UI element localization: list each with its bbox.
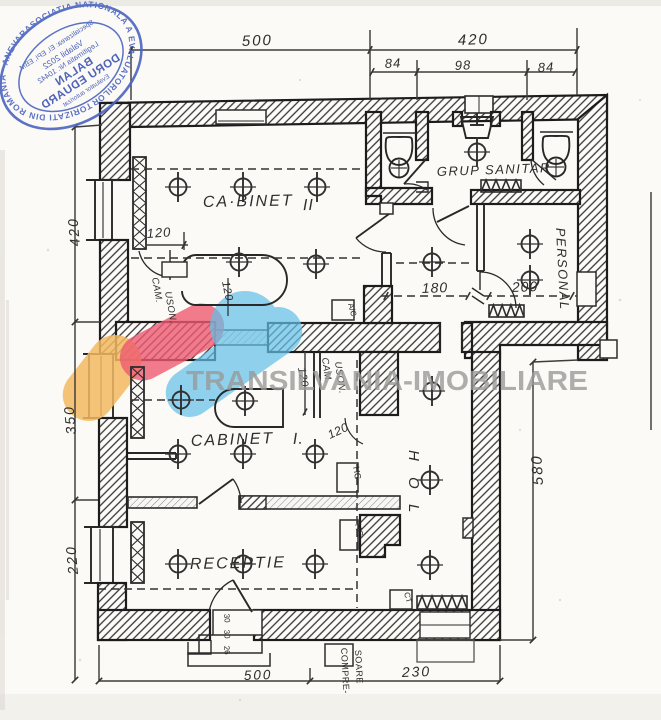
svg-text:II: II — [303, 197, 314, 214]
svg-text:RECEPTIE: RECEPTIE — [190, 554, 286, 573]
svg-text:I.: I. — [293, 431, 304, 448]
svg-text:SOARE: SOARE — [353, 650, 365, 684]
svg-text:580: 580 — [528, 454, 547, 486]
svg-text:O: O — [405, 477, 422, 489]
svg-text:420: 420 — [64, 216, 82, 247]
svg-text:TRANSILVANIA-IMOBILIARE: TRANSILVANIA-IMOBILIARE — [186, 365, 588, 396]
svg-text:CA·BINET: CA·BINET — [203, 192, 294, 211]
svg-text:200: 200 — [511, 278, 539, 295]
svg-text:L: L — [405, 504, 422, 512]
svg-text:98: 98 — [454, 57, 471, 73]
svg-text:420: 420 — [458, 31, 490, 49]
svg-text:30: 30 — [222, 613, 232, 623]
svg-text:H: H — [405, 450, 422, 461]
svg-text:500: 500 — [244, 667, 273, 683]
svg-text:CABINET: CABINET — [191, 430, 275, 450]
svg-text:500: 500 — [242, 32, 274, 50]
svg-text:220: 220 — [62, 544, 81, 576]
svg-text:180: 180 — [422, 279, 449, 296]
svg-text:120: 120 — [146, 224, 172, 241]
svg-text:84: 84 — [384, 55, 401, 71]
svg-text:30: 30 — [222, 629, 232, 639]
svg-text:350: 350 — [60, 404, 78, 435]
svg-text:84: 84 — [537, 59, 554, 75]
svg-text:230: 230 — [401, 663, 432, 680]
svg-text:26: 26 — [222, 645, 232, 655]
